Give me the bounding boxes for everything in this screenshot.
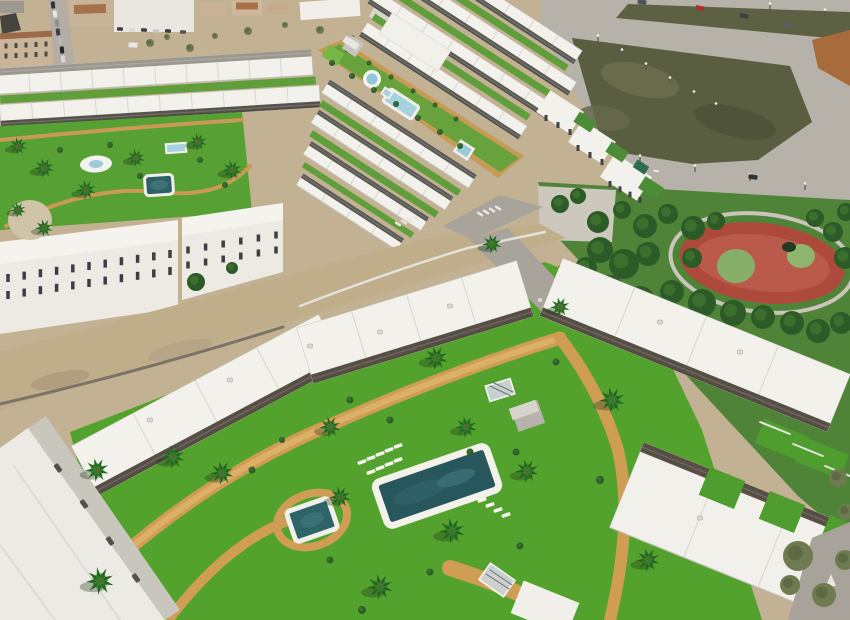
rooftop-unit	[148, 418, 153, 422]
facade-window	[239, 253, 243, 260]
shrub-highlight	[213, 34, 216, 37]
palm-trunk-top	[134, 156, 137, 159]
palm-trunk-top	[525, 469, 528, 472]
facade-window	[186, 262, 190, 269]
street-lamp-head	[804, 182, 807, 185]
facade-window	[257, 250, 261, 257]
facade-window	[136, 255, 140, 263]
roadside-tree-highlight	[783, 578, 793, 588]
parked-car	[60, 46, 65, 53]
town-window	[45, 42, 48, 47]
facade-window	[257, 235, 261, 242]
street-lamp-head	[597, 34, 600, 37]
parked-car	[53, 10, 58, 17]
town-window	[5, 54, 8, 59]
shrub-highlight	[165, 35, 168, 38]
parked-car	[180, 30, 186, 34]
garden-bush-highlight	[348, 398, 352, 402]
playground-structure	[782, 242, 796, 252]
facade-window	[186, 247, 190, 254]
street-lamp-head	[693, 90, 696, 93]
park-bush-highlight	[223, 183, 226, 186]
facade-window	[55, 267, 59, 275]
palm-trunk-top	[378, 585, 381, 588]
house-window	[639, 197, 642, 203]
rooftop-unit	[308, 344, 313, 348]
palm-trunk-top	[98, 579, 101, 582]
park-bush-highlight	[198, 158, 201, 161]
rooftop-unit	[538, 298, 543, 302]
palm-trunk-top	[646, 558, 649, 561]
hedge-bush-highlight	[433, 103, 436, 106]
palm-trunk-top	[95, 468, 98, 471]
facade-window	[152, 252, 156, 260]
park-bush-highlight	[58, 148, 61, 151]
park-tree-highlight	[840, 206, 849, 215]
house-window	[589, 152, 592, 158]
house-window	[545, 115, 548, 121]
garden-bush-highlight	[514, 450, 518, 454]
rooftop-unit	[378, 330, 383, 334]
facade-window	[120, 274, 124, 282]
facade-window	[152, 269, 156, 277]
park-tree-highlight	[810, 323, 822, 335]
street-lamp-head	[824, 8, 827, 11]
palm-trunk-top	[230, 168, 233, 171]
palm-trunk-top	[450, 529, 453, 532]
hedge-bush-highlight	[394, 102, 397, 105]
park-tree-highlight	[614, 254, 629, 269]
town-block	[268, 4, 288, 15]
garden-bush-highlight	[428, 570, 432, 574]
house-window	[609, 181, 612, 187]
hedge-bush-highlight	[389, 75, 392, 78]
park-tree-highlight	[572, 190, 580, 198]
roadside-tree-highlight	[832, 472, 841, 481]
street-lamp-head	[621, 48, 624, 51]
hedge-bush-highlight	[454, 117, 457, 120]
rooftop-unit	[448, 304, 453, 308]
facade-window	[87, 279, 91, 287]
park-tree-highlight	[833, 315, 844, 326]
palm-trunk-top	[196, 140, 199, 143]
house-window	[619, 186, 622, 192]
town-roofs-gray	[0, 1, 24, 13]
palm-trunk-top	[434, 356, 437, 359]
palm-trunk-top	[220, 471, 223, 474]
house-window	[569, 129, 572, 135]
parked-car	[165, 29, 171, 33]
facade-window	[39, 286, 43, 294]
hedge-bush-highlight	[330, 61, 333, 64]
garden-bush-highlight	[250, 468, 254, 472]
facade-window	[168, 250, 172, 258]
shrub-highlight	[187, 45, 191, 49]
shrub-highlight	[147, 40, 151, 44]
rect-pool	[166, 143, 187, 153]
hedge-bush-highlight	[350, 74, 353, 77]
park-tree-highlight	[710, 215, 719, 224]
garden-bush-highlight	[328, 558, 332, 562]
shrub-highlight	[317, 27, 321, 31]
palm-trunk-top	[328, 425, 331, 428]
town-window	[35, 42, 38, 47]
parked-car	[61, 55, 66, 62]
street-tree-highlight	[190, 276, 199, 285]
garden-bush-highlight	[388, 418, 392, 422]
house-window	[629, 192, 632, 198]
parked-car	[117, 27, 123, 31]
facade-window	[136, 272, 140, 280]
facade-window	[71, 264, 75, 272]
town-window	[25, 43, 28, 48]
park-tree-highlight	[724, 304, 737, 317]
van	[128, 42, 137, 47]
town-window	[15, 43, 18, 48]
facade-window	[6, 291, 10, 299]
park-tree-highlight	[664, 284, 676, 296]
facade-window	[103, 277, 107, 285]
facade-window	[221, 256, 225, 263]
parked-car	[56, 28, 61, 35]
facade-window	[204, 244, 208, 251]
garden-bush-highlight	[359, 607, 363, 611]
roadside-tree-highlight	[788, 546, 803, 561]
palm-trunk-top	[558, 305, 561, 308]
town-roof-tile	[236, 3, 258, 10]
hedge-bush-highlight	[458, 144, 461, 147]
aerial-render-image	[0, 0, 850, 620]
palm-trunk-top	[610, 398, 613, 401]
playground-circle	[717, 249, 755, 283]
town-window	[35, 52, 38, 57]
park-tree-highlight	[616, 204, 625, 213]
town-window	[15, 53, 18, 58]
park-bush-highlight	[138, 174, 141, 177]
palm-trunk-top	[84, 188, 87, 191]
park-tree-highlight	[837, 250, 848, 261]
roadside-tree-highlight	[816, 587, 828, 599]
garden-bush-highlight	[597, 477, 601, 481]
hedge-bush-highlight	[367, 61, 370, 64]
palm-trunk-top	[16, 208, 19, 211]
parked-car	[153, 29, 159, 33]
facade-window	[221, 241, 225, 248]
facade-window	[239, 238, 243, 245]
parked-car	[55, 19, 60, 26]
facade-window	[274, 247, 278, 254]
hedge-bush-highlight	[411, 89, 414, 92]
park-tree-highlight	[784, 315, 796, 327]
park-tree-highlight	[685, 251, 695, 261]
facade-window	[71, 281, 75, 289]
roadside-tree-highlight	[840, 506, 848, 514]
palm-trunk-top	[42, 226, 45, 229]
splash-pool-water	[367, 74, 378, 85]
scene-svg	[0, 0, 850, 620]
park-tree-highlight	[661, 207, 671, 217]
facade-window	[204, 259, 208, 266]
roadside-tree-highlight	[838, 553, 848, 563]
house-window	[557, 122, 560, 128]
garden-bush-highlight	[554, 360, 558, 364]
park-tree-highlight	[826, 225, 836, 235]
park-tree-highlight	[685, 220, 697, 232]
facade-window	[55, 284, 59, 292]
street-lamp-head	[715, 102, 718, 105]
park-tree-highlight	[692, 293, 706, 307]
park-tree-highlight	[640, 246, 652, 258]
town-block	[200, 3, 226, 16]
street-lamp-head	[645, 62, 648, 65]
street-tree-highlight	[228, 264, 234, 270]
park-tree-highlight	[554, 198, 563, 207]
house-window	[601, 159, 604, 165]
palm-trunk-top	[338, 495, 341, 498]
parked-car	[51, 1, 56, 8]
palm-trunk-top	[42, 166, 45, 169]
facade-window	[87, 262, 91, 270]
facade-window	[168, 267, 172, 275]
parked-car	[129, 28, 135, 32]
hedge-bush-highlight	[438, 130, 441, 133]
palm-trunk-top	[464, 425, 467, 428]
garden-bush-highlight	[518, 544, 522, 548]
shrub-highlight	[245, 28, 249, 32]
palm-trunk-top	[490, 242, 493, 245]
facade-window	[22, 272, 26, 280]
rooftop-unit	[228, 378, 233, 382]
palm-trunk-top	[171, 455, 174, 458]
parked-car	[58, 37, 63, 44]
garden-bush-highlight	[280, 438, 283, 441]
rooftop-unit	[658, 320, 663, 324]
facade-window	[120, 257, 124, 265]
town-roof-tile	[74, 4, 106, 14]
facade-window	[274, 232, 278, 239]
street-lamp-head	[769, 2, 772, 5]
hedge-bush-highlight	[372, 88, 375, 91]
shrub-highlight	[283, 23, 286, 26]
town-window	[45, 52, 48, 57]
parked-car	[141, 28, 147, 32]
hedge-bush-highlight	[416, 116, 419, 119]
park-bush-highlight	[108, 143, 111, 146]
town-window	[5, 44, 8, 49]
house-window	[577, 145, 580, 151]
rooftop-unit	[698, 516, 703, 520]
facade-window	[6, 274, 10, 282]
park-tree-highlight	[637, 218, 649, 230]
street-lamp-head	[639, 154, 642, 157]
palm-trunk-top	[16, 144, 19, 147]
town-window	[25, 53, 28, 58]
facade-window	[39, 269, 43, 277]
park-tree-highlight	[755, 309, 767, 321]
rooftop-unit	[738, 350, 743, 354]
park-tree-highlight	[590, 214, 601, 225]
facade-window	[103, 260, 107, 268]
facade-window	[22, 289, 26, 297]
street-lamp-head	[694, 164, 697, 167]
town-building-white	[114, 0, 194, 32]
garden-bush-highlight	[468, 450, 472, 454]
park-tree-highlight	[591, 241, 604, 254]
street-lamp-head	[669, 76, 672, 79]
park-tree-highlight	[809, 212, 818, 221]
